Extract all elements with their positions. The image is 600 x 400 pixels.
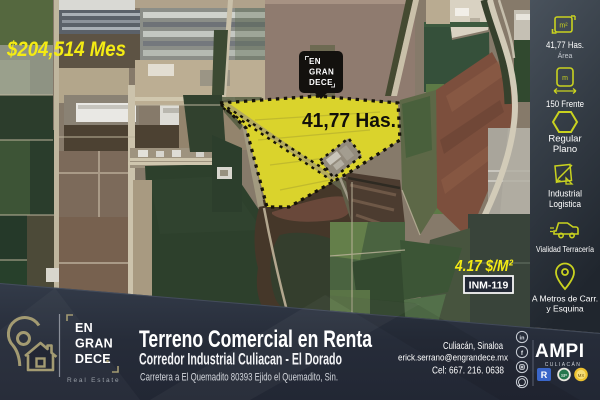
- svg-text:Terreno Comercial en Renta: Terreno Comercial en Renta: [139, 326, 372, 353]
- svg-text:Real Estate: Real Estate: [67, 377, 120, 384]
- svg-text:MX: MX: [578, 373, 585, 378]
- svg-text:$204,514 Mes: $204,514 Mes: [6, 37, 126, 61]
- svg-text:SP: SP: [561, 373, 567, 378]
- svg-text:Cel: 667. 216. 0638: Cel: 667. 216. 0638: [432, 365, 504, 377]
- svg-text:AMPI: AMPI: [535, 341, 585, 362]
- svg-text:Corredor Industrial Culiacan -: Corredor Industrial Culiacan - El Dorado: [139, 351, 342, 369]
- svg-text:Carretera a El Quemadito 80393: Carretera a El Quemadito 80393 Ejido el …: [140, 372, 338, 384]
- svg-text:in: in: [520, 336, 526, 342]
- svg-text:m²: m²: [559, 23, 568, 30]
- svg-text:A Metros de Carr.: A Metros de Carr.: [532, 294, 598, 304]
- svg-text:y Esquina: y Esquina: [546, 304, 584, 314]
- svg-text:DECE: DECE: [309, 78, 333, 87]
- svg-text:Culiacán, Sinaloa: Culiacán, Sinaloa: [443, 340, 503, 352]
- svg-text:EN: EN: [75, 321, 93, 335]
- svg-text:150 Frente: 150 Frente: [546, 99, 584, 110]
- svg-text:INM-119: INM-119: [469, 280, 509, 292]
- svg-text:EN: EN: [309, 57, 321, 66]
- svg-text:Plano: Plano: [553, 144, 577, 155]
- svg-text:41,77 Has.: 41,77 Has.: [302, 109, 396, 132]
- svg-text:erick.serrano@engrandece.mx: erick.serrano@engrandece.mx: [398, 353, 508, 364]
- svg-text:CULIACÁN: CULIACÁN: [545, 361, 581, 368]
- svg-text:Logistica: Logistica: [549, 199, 582, 210]
- svg-text:4.17 $/M²: 4.17 $/M²: [454, 258, 513, 275]
- svg-text:GRAN: GRAN: [75, 337, 113, 351]
- svg-text:DECE: DECE: [75, 352, 111, 366]
- svg-text:R: R: [541, 370, 548, 380]
- svg-text:Industrial: Industrial: [548, 189, 582, 200]
- svg-text:GRAN: GRAN: [309, 68, 334, 77]
- svg-text:Área: Área: [558, 51, 573, 60]
- svg-text:m: m: [562, 75, 568, 82]
- svg-text:41,77 Has.: 41,77 Has.: [546, 40, 584, 51]
- svg-text:Vialidad Terracería: Vialidad Terracería: [536, 245, 594, 254]
- svg-text:Regular: Regular: [548, 134, 581, 145]
